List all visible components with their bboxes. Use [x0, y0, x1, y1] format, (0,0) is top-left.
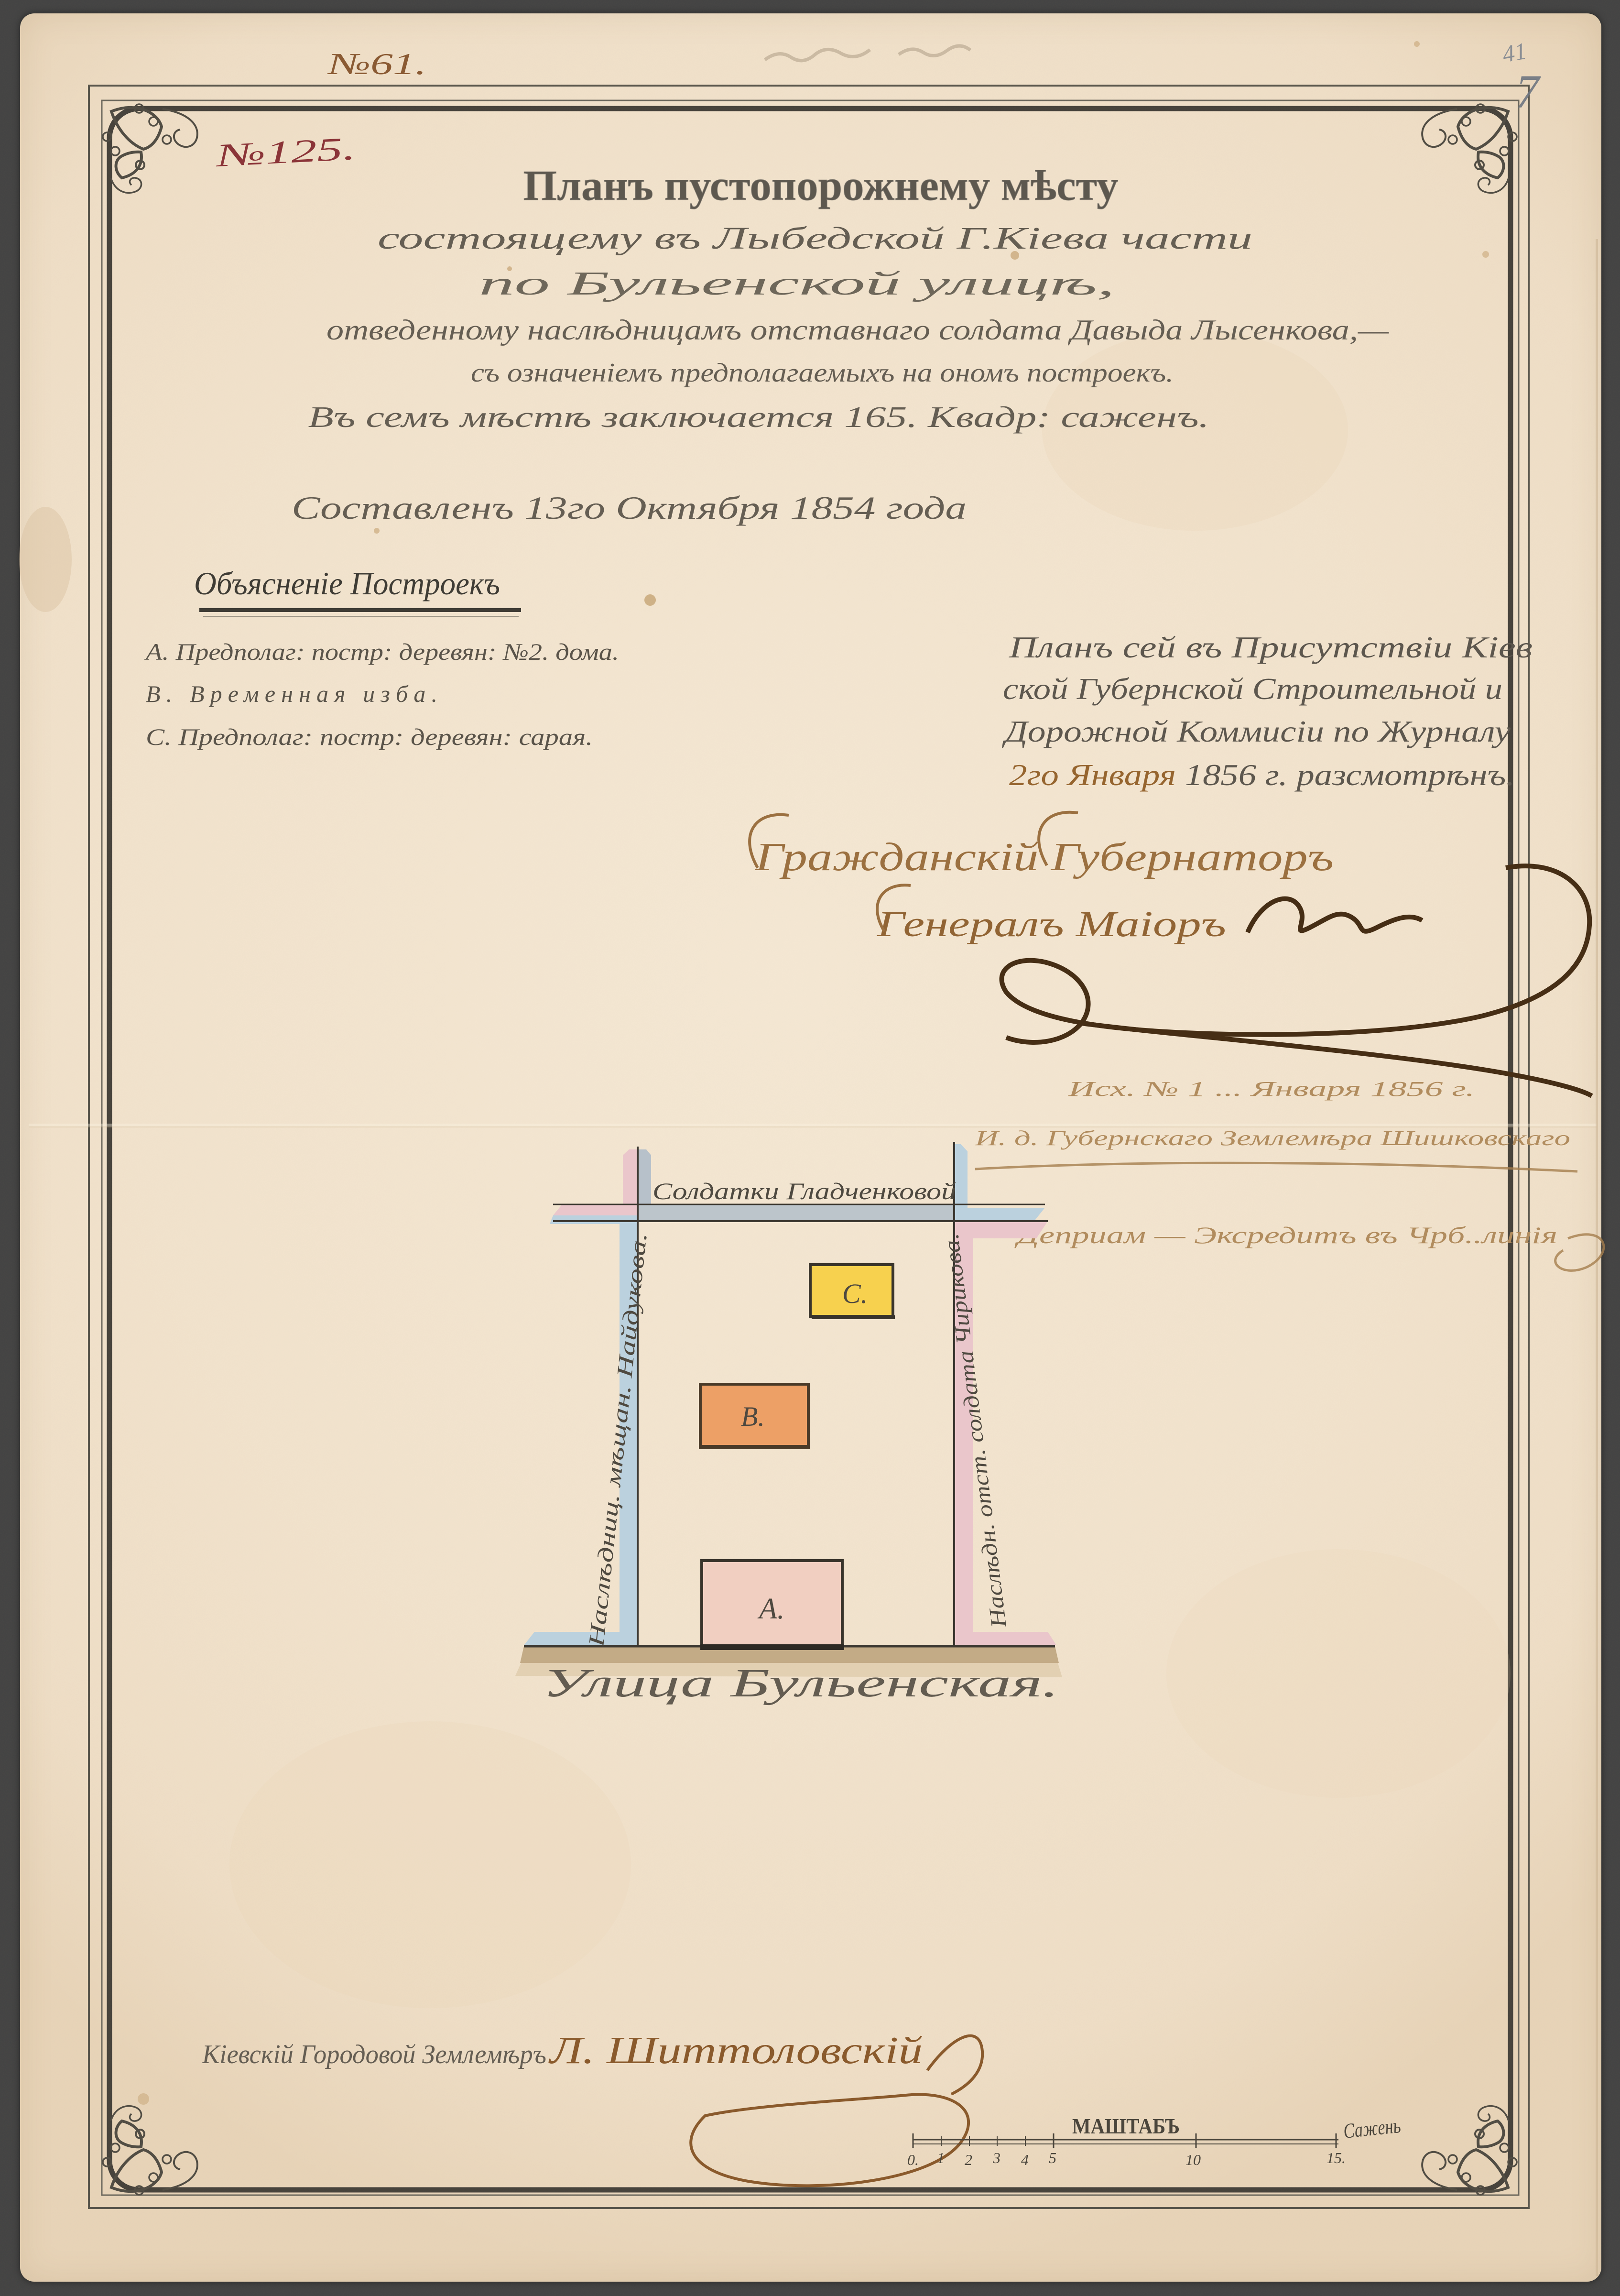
svg-text:1: 1 [937, 2149, 945, 2166]
svg-text:Генералъ Маіоръ: Генералъ Маіоръ [877, 904, 1226, 944]
svg-text:Составленъ 13го Октября 1854 г: Составленъ 13го Октября 1854 года [292, 490, 967, 526]
svg-text:А. Предполаг: постр: деревян:: А. Предполаг: постр: деревян: №2. дома. [144, 638, 619, 665]
svg-text:4: 4 [1021, 2151, 1029, 2168]
svg-text:Въ семъ мѣстѣ заключается 165: Въ семъ мѣстѣ заключается 165. Квадр: са… [308, 401, 1209, 434]
svg-text:7: 7 [1515, 65, 1541, 118]
svg-text:41: 41 [1500, 37, 1529, 68]
svg-text:И. д. Губернскаго Землемѣра Ши: И. д. Губернскаго Землемѣра Шишковскаго [974, 1126, 1570, 1150]
svg-text:2го Января 1856 г. разсмотрѣнъ: 2го Января 1856 г. разсмотрѣнъ. [1009, 758, 1515, 792]
svg-text:состоящему въ Лыбедской Г.Кіев: состоящему въ Лыбедской Г.Кіева части [378, 221, 1252, 256]
svg-text:№61.: №61. [327, 47, 426, 81]
svg-text:Исх. № 1 ... Января 1856 г.: Исх. № 1 ... Января 1856 г. [1067, 1077, 1475, 1101]
svg-text:Планъ пустопорожнему мѣсту: Планъ пустопорожнему мѣсту [523, 162, 1119, 209]
svg-text:Улица Бульенская.: Улица Бульенская. [543, 1661, 1059, 1706]
svg-text:С. Предполаг: постр: деревян:: С. Предполаг: постр: деревян: сарая. [146, 723, 593, 750]
svg-text:по Бульенской улицѣ,: по Бульенской улицѣ, [479, 265, 1115, 302]
svg-text:Кіевскій Городовой Землемѣръ: Кіевскій Городовой Землемѣръ [202, 2040, 546, 2069]
svg-text:ской Губернской Строительной и: ской Губернской Строительной и [1003, 672, 1502, 706]
svg-text:№125.: №125. [215, 130, 357, 174]
svg-text:съ означеніемъ предполагаемыхъ: съ означеніемъ предполагаемыхъ на ономъ … [471, 358, 1174, 388]
svg-text:отведенному наслѣдницамъ отста: отведенному наслѣдницамъ отставнаго солд… [326, 314, 1389, 346]
svg-text:3: 3 [992, 2149, 1000, 2166]
svg-text:В.: В. [741, 1401, 765, 1432]
svg-text:С.: С. [842, 1278, 868, 1309]
svg-text:Дорожной Коммисіи по Журналу: Дорожной Коммисіи по Журналу [1002, 714, 1511, 748]
svg-text:10: 10 [1185, 2151, 1201, 2168]
svg-text:А.: А. [757, 1593, 784, 1625]
svg-text:Объясненіе Построекъ: Объясненіе Построекъ [194, 565, 500, 601]
svg-text:Деприам — Эксредитъ въ Чрб..ли: Деприам — Эксредитъ въ Чрб..линія [1014, 1222, 1557, 1248]
svg-text:5: 5 [1049, 2149, 1056, 2166]
svg-text:15.: 15. [1326, 2149, 1346, 2166]
svg-text:МАШТАБЪ: МАШТАБЪ [1072, 2114, 1180, 2138]
svg-text:0.: 0. [907, 2151, 919, 2168]
svg-text:Л. Шиттоловскій: Л. Шиттоловскій [548, 2030, 923, 2072]
svg-text:2: 2 [965, 2151, 972, 2168]
svg-text:Планъ сей въ Присутствіи Кіев: Планъ сей въ Присутствіи Кіев [1009, 630, 1533, 664]
svg-text:Солдатки Гладченковой: Солдатки Гладченковой [652, 1178, 956, 1204]
